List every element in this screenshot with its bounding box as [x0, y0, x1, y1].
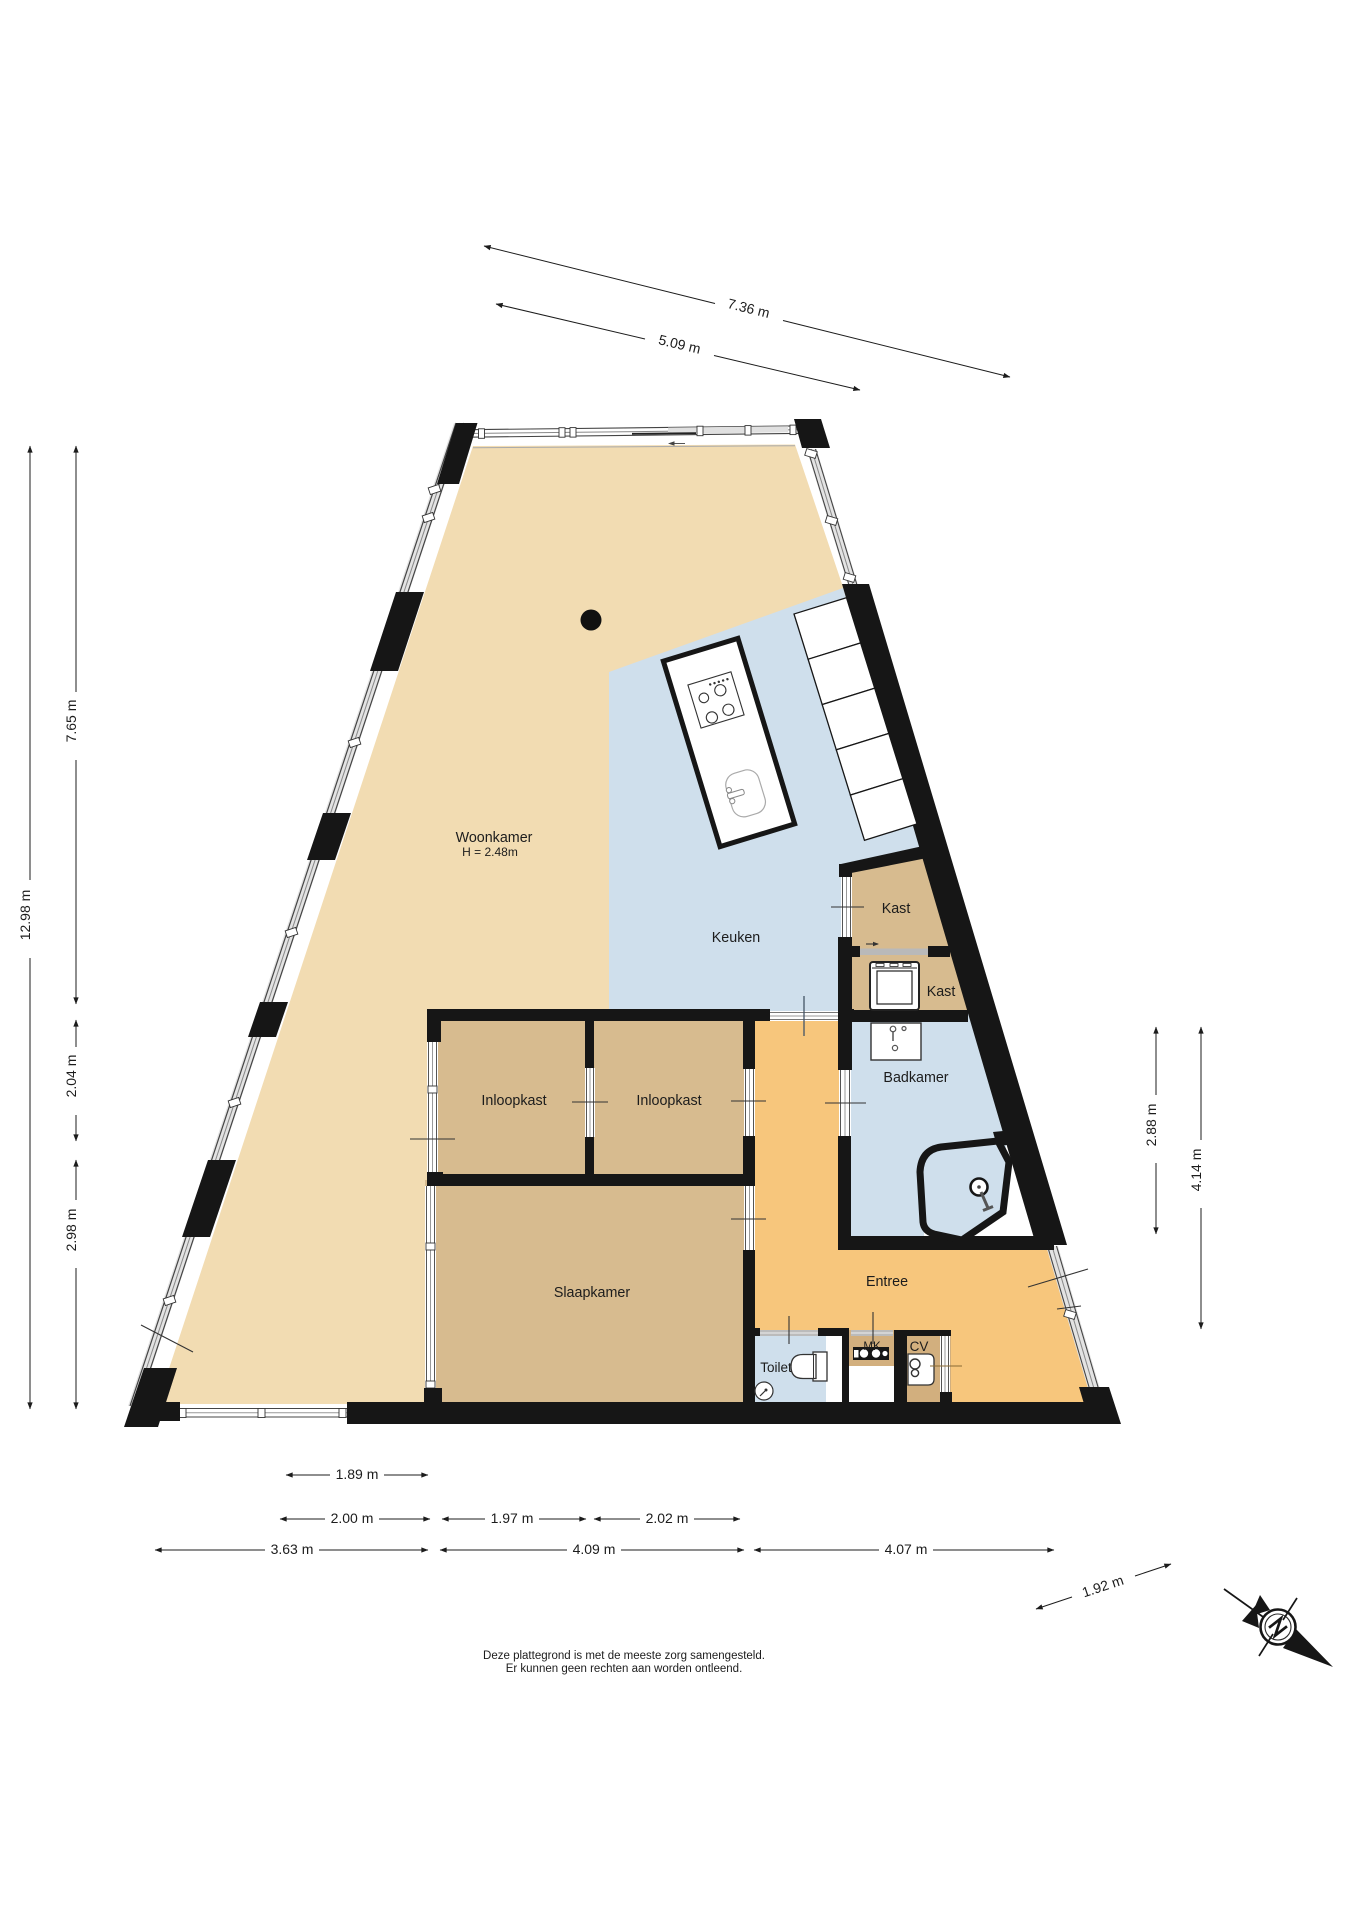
- svg-text:Kast: Kast: [882, 901, 911, 917]
- svg-text:Inloopkast: Inloopkast: [481, 1093, 546, 1109]
- svg-text:Kast: Kast: [927, 984, 956, 1000]
- svg-text:12.98 m: 12.98 m: [17, 890, 33, 941]
- svg-text:H = 2.48m: H = 2.48m: [462, 845, 518, 859]
- svg-text:4.09 m: 4.09 m: [573, 1541, 616, 1557]
- svg-text:2.88 m: 2.88 m: [1143, 1104, 1159, 1147]
- svg-text:Keuken: Keuken: [712, 930, 761, 946]
- svg-text:Inloopkast: Inloopkast: [636, 1093, 701, 1109]
- svg-text:2.98 m: 2.98 m: [63, 1209, 79, 1252]
- svg-text:Deze plattegrond is met de mee: Deze plattegrond is met de meeste zorg s…: [483, 1650, 765, 1662]
- svg-text:1.89 m: 1.89 m: [336, 1466, 379, 1482]
- svg-text:Woonkamer: Woonkamer: [456, 830, 533, 846]
- svg-text:MK: MK: [863, 1341, 881, 1353]
- svg-text:CV: CV: [910, 1339, 929, 1354]
- svg-text:2.02 m: 2.02 m: [646, 1510, 689, 1526]
- svg-text:2.00 m: 2.00 m: [331, 1510, 374, 1526]
- svg-text:4.14 m: 4.14 m: [1188, 1149, 1204, 1192]
- svg-text:Badkamer: Badkamer: [883, 1070, 948, 1086]
- svg-text:4.07 m: 4.07 m: [885, 1541, 928, 1557]
- svg-text:1.97 m: 1.97 m: [491, 1510, 534, 1526]
- svg-text:Er kunnen geen rechten aan wor: Er kunnen geen rechten aan worden ontlee…: [506, 1663, 743, 1675]
- svg-text:7.65 m: 7.65 m: [63, 700, 79, 743]
- svg-text:Toilet: Toilet: [760, 1360, 792, 1375]
- svg-text:Entree: Entree: [866, 1274, 908, 1290]
- svg-text:Slaapkamer: Slaapkamer: [554, 1285, 631, 1301]
- svg-text:3.63 m: 3.63 m: [271, 1541, 314, 1557]
- svg-text:2.04 m: 2.04 m: [63, 1055, 79, 1098]
